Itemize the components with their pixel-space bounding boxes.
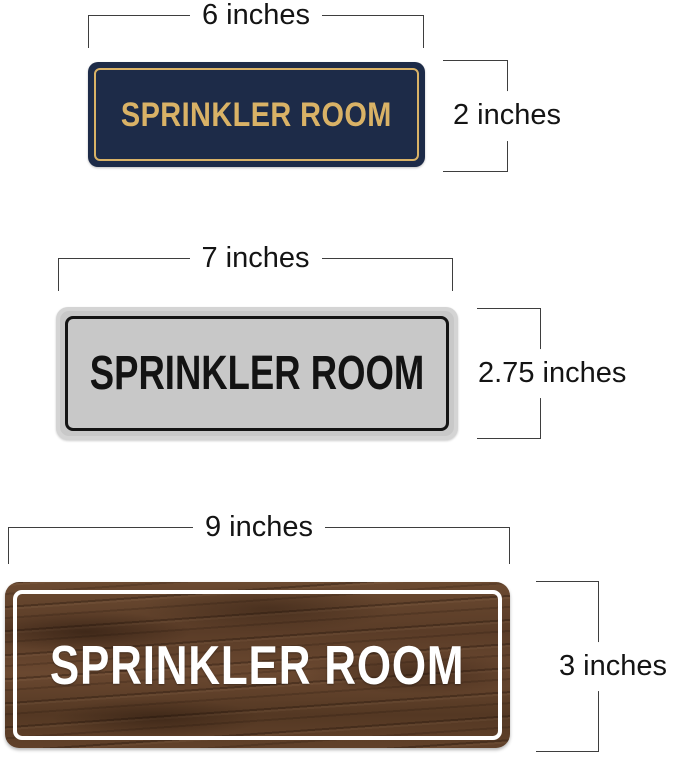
height-dimension-silver: 2.75 inches [477,308,541,439]
sign-navy: SPRINKLER ROOM [88,62,425,167]
width-dimension-silver: 7 inches [58,258,453,291]
sign-wood: SPRINKLER ROOM [5,582,510,748]
width-dimension-label: 9 inches [193,510,325,546]
sign-wood-label: SPRINKLER ROOM [50,638,465,693]
sign-silver: SPRINKLER ROOM [56,307,458,440]
sign-navy-label: SPRINKLER ROOM [121,98,392,132]
width-dimension-label: 6 inches [190,0,322,34]
sign-silver-label: SPRINKLER ROOM [90,350,424,398]
height-dimension-label: 3 inches [553,642,673,692]
height-dimension-label: 2 inches [447,91,567,141]
height-dimension-wood: 3 inches [536,581,599,752]
height-dimension-navy: 2 inches [443,60,508,172]
height-dimension-label: 2.75 inches [472,349,632,399]
width-dimension-label: 7 inches [189,241,321,277]
width-dimension-navy: 6 inches [88,15,424,48]
width-dimension-wood: 9 inches [8,527,510,564]
